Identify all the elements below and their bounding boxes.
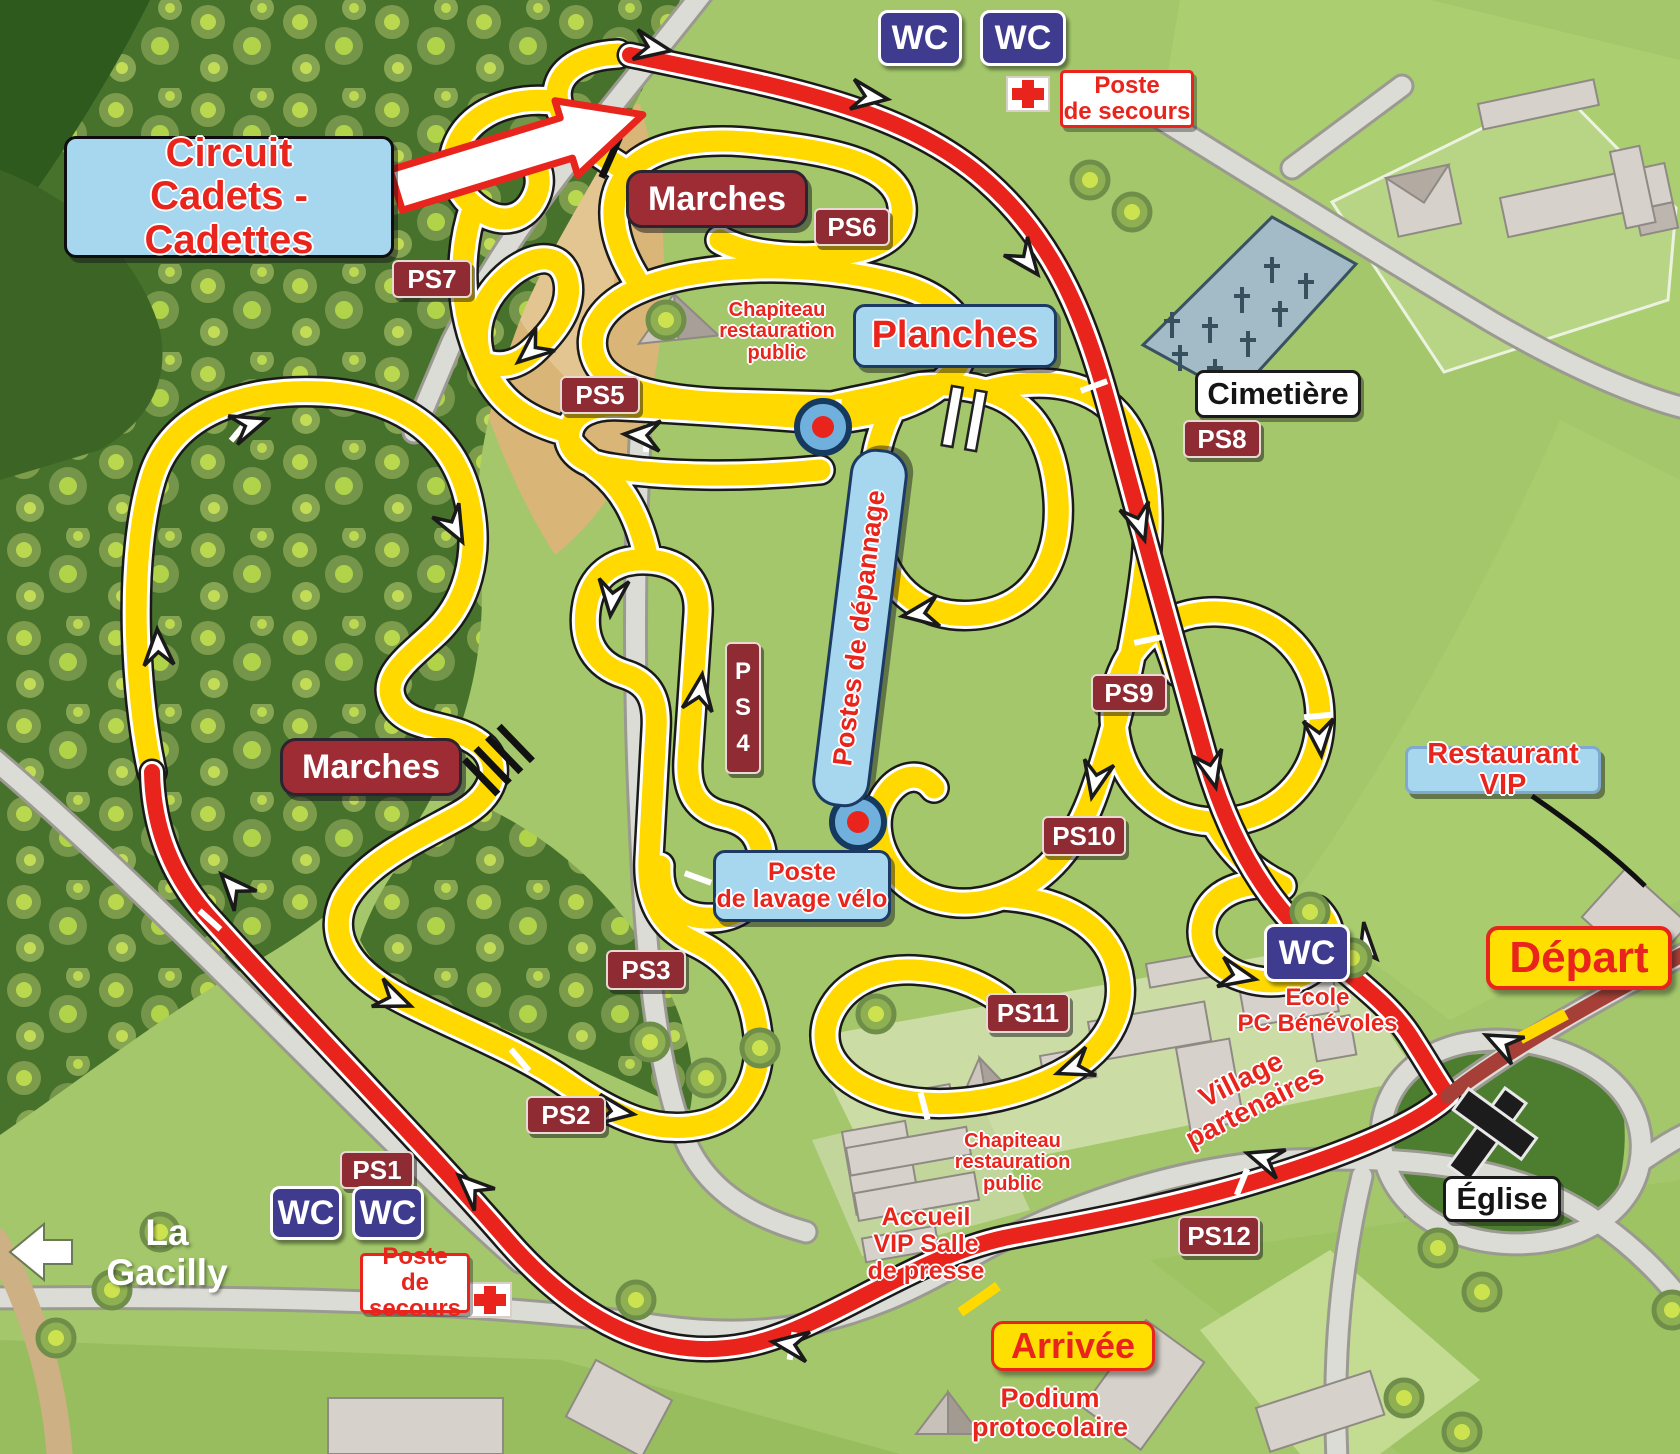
wc-badge: WC [352, 1186, 424, 1240]
label-ps5: PS5 [560, 376, 640, 414]
label-arrivee: Arrivée [991, 1321, 1155, 1371]
wc-badge: WC [270, 1186, 342, 1240]
label-ps11: PS11 [986, 993, 1070, 1033]
label-podium: Podium protocolaire [945, 1381, 1155, 1445]
label-ps4: P S 4 [725, 642, 761, 774]
wc-badge: WC [878, 10, 962, 66]
label-poste-lavage: Poste de lavage vélo [713, 850, 891, 922]
label-accueil-vip: Accueil VIP Salle de presse [836, 1200, 1016, 1288]
label-ps3: PS3 [606, 950, 686, 990]
label-ps9: PS9 [1091, 674, 1167, 712]
label-la-gacilly: La Gacilly [82, 1233, 252, 1273]
label-depart: Départ [1486, 926, 1672, 990]
label-poste-secours-bottom: Poste de secours [360, 1253, 470, 1313]
wc-badge: WC [980, 10, 1066, 66]
bike-pit-icon [797, 401, 849, 453]
label-ps6: PS6 [814, 208, 890, 246]
label-ps2: PS2 [526, 1096, 606, 1134]
label-chapiteau-top: Chapiteau restauration public [712, 292, 842, 372]
course-map: Circuit Cadets - Cadettes PS7 Marches PS… [0, 0, 1680, 1454]
label-marches-left: Marches [280, 738, 462, 796]
label-ps12: PS12 [1178, 1216, 1260, 1256]
label-cimetiere: Cimetière [1195, 370, 1361, 418]
label-ps7: PS7 [392, 260, 472, 298]
label-chapiteau-bottom: Chapiteau restauration public [950, 1126, 1075, 1200]
first-aid-icon [469, 1283, 511, 1317]
label-ps1: PS1 [340, 1151, 414, 1189]
label-marches-top: Marches [626, 170, 808, 228]
label-poste-secours-top: Poste de secours [1060, 70, 1194, 128]
label-planches: Planches [853, 304, 1057, 368]
label-eglise: Église [1443, 1176, 1561, 1222]
label-circuit-cadets: Circuit Cadets - Cadettes [64, 136, 394, 258]
first-aid-icon [1007, 77, 1049, 111]
label-ps10: PS10 [1042, 816, 1126, 856]
label-restaurant-vip: Restaurant VIP [1405, 746, 1601, 794]
wc-badge: WC [1264, 924, 1350, 982]
label-ps8: PS8 [1183, 420, 1261, 458]
